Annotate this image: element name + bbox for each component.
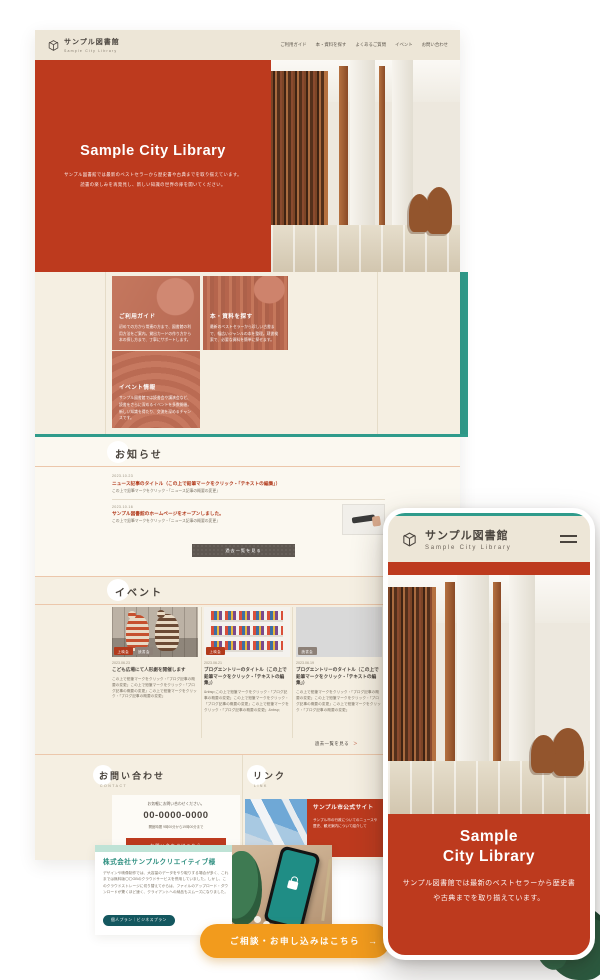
mobile-page: サンプル図書館 Sample City Library Sample	[388, 513, 590, 955]
nav-item-search-books[interactable]: 本・資料を探す	[316, 42, 347, 48]
event-tag: 読書会	[135, 647, 154, 655]
event-title-link[interactable]: ブログエントリーのタイトル（この上で鉛筆マークをクリック・「テキストの編集」）	[296, 667, 382, 687]
cube-logo-icon	[401, 531, 418, 548]
main-nav: ご利用ガイド 本・資料を探す よくあるご質問 イベント お問い合わせ	[280, 42, 448, 48]
event-tag: 上映会	[206, 647, 225, 655]
hamburger-menu-icon[interactable]	[560, 535, 577, 547]
feature-events-title: イベント情報	[119, 383, 193, 391]
feature-card-guide[interactable]: ご利用ガイド 初めての方から常連の方まで、図書館の利用方法をご案内。貸出カードの…	[112, 276, 200, 350]
event-photo-dolls: 上映会 読書会	[112, 607, 198, 657]
event-photo-placeholder: 読書会	[296, 607, 382, 657]
teal-backdrop-bar	[459, 272, 468, 436]
feature-guide-title: ご利用ガイド	[119, 312, 193, 320]
mobile-hero-title-line2: City Library	[388, 847, 590, 867]
hero-text-panel: Sample City Library サンプル図書館では最新のベストセラーから…	[35, 60, 271, 272]
contact-phone: 00-0000-0000	[112, 810, 240, 821]
links-heading-en: LINK	[254, 784, 268, 788]
feature-guide-body: 初めての方から常連の方まで、図書館の利用方法をご案内。貸出カードの作り方から本の…	[119, 324, 193, 344]
event-date: 2023.06.21	[204, 661, 290, 665]
chevron-right-icon: ＞	[353, 741, 358, 746]
site-header: サンプル図書館 Sample City Library ご利用ガイド 本・資料を…	[35, 30, 460, 60]
feature-card-search[interactable]: 本・資料を探す 最新のベストセラーから珍しい古書まで、幅広いジャンルの本を整理。…	[203, 276, 288, 350]
event-photo-bookshelf: 上映会	[204, 607, 290, 657]
cta-label: ご相談・お申し込みはこちら	[230, 935, 360, 947]
mobile-screenshot-frame: サンプル図書館 Sample City Library Sample	[383, 508, 595, 960]
feature-card-events[interactable]: イベント情報 サンプル図書館では読書会や講演会など、読書をさらに深めるイベントを…	[112, 351, 200, 428]
testimonial-body: デザインや映像制作では、大容量のデータをやり取りする場合が多く、これまでは無料版…	[103, 870, 229, 896]
news-thumbnail	[342, 504, 385, 535]
links-heading: リンク	[253, 769, 286, 782]
hero-library-photo	[271, 60, 460, 272]
news-summary: この上で鉛筆マークをクリック・「ニュース記事の概要の変更」	[112, 519, 333, 524]
link-card-body: サンプル市の行政についてのニュースや歴史、観光案内について紹介して	[313, 817, 379, 829]
link-card-title: サンプル市公式サイト	[313, 805, 379, 813]
event-title-link[interactable]: こども広場にて人形劇を開催します	[112, 667, 198, 674]
teal-section-seam	[35, 434, 468, 437]
arrow-right-icon: →	[368, 936, 377, 946]
news-more-button[interactable]: 過去一覧を見る	[192, 544, 295, 557]
contact-heading-en: CONTACT	[100, 784, 127, 788]
earbud-decoration	[254, 916, 261, 923]
testimonial-photo	[232, 845, 332, 935]
event-card[interactable]: 上映会 読書会 2023.06.23 こども広場にて人形劇を開催します この上で…	[112, 607, 198, 700]
feature-search-title: 本・資料を探す	[210, 312, 281, 320]
contact-note: お気軽にお問い合わせください。	[112, 802, 240, 807]
news-heading: お知らせ	[115, 446, 163, 461]
contact-hours: 開館時間 9時00分から19時00分まで	[112, 824, 240, 829]
plant-decoration	[232, 851, 262, 925]
event-card[interactable]: 読書会 2023.06.19 ブログエントリーのタイトル（この上で鉛筆マークをク…	[296, 607, 382, 714]
mobile-hero-panel: Sample City Library サンプル図書館では最新のベストセラーから…	[388, 814, 590, 955]
event-tag: 読書会	[298, 647, 317, 655]
event-date: 2023.06.19	[296, 661, 382, 665]
event-card[interactable]: 上映会 2023.06.21 ブログエントリーのタイトル（この上で鉛筆マークをク…	[204, 607, 290, 714]
news-date: 2023.10.16	[112, 505, 333, 509]
mobile-hero-photo	[388, 575, 590, 814]
logo-title: サンプル図書館	[64, 37, 120, 47]
hero-section: Sample City Library サンプル図書館では最新のベストセラーから…	[35, 60, 460, 272]
news-item: 2023.10.23 ニュース記事のタイトル（この上で鉛筆マークをクリック・「テ…	[112, 474, 385, 494]
site-logo[interactable]: サンプル図書館 Sample City Library	[47, 37, 120, 53]
hero-subtitle-line2: 読書の楽しみを再発見し、新しい知識の世界の扉を開いてください。	[80, 180, 225, 189]
news-title-link[interactable]: ニュース記事のタイトル（この上で鉛筆マークをクリック・「テキストの編集」）	[112, 481, 385, 487]
testimonial-plan-badge: 個人プラン｜ビジネスプラン	[103, 915, 175, 926]
mobile-red-bar	[388, 562, 590, 575]
nav-item-guide[interactable]: ご利用ガイド	[280, 42, 306, 48]
event-body: この上で鉛筆マークをクリック・「ブログ記事の概要の変更」この上で鉛筆マークをクリ…	[296, 690, 382, 714]
news-title-link[interactable]: サンプル図書館のホームページをオープンしました。	[112, 511, 333, 517]
event-title-link[interactable]: ブログエントリーのタイトル（この上で鉛筆マークをクリック・「テキストの編集」）	[204, 667, 290, 687]
events-more-link[interactable]: 過去一覧を見る＞	[315, 741, 358, 747]
event-date: 2023.06.23	[112, 661, 198, 665]
cube-logo-icon	[47, 39, 60, 52]
features-section: ご利用ガイド 初めての方から常連の方まで、図書館の利用方法をご案内。貸出カードの…	[35, 272, 460, 435]
mobile-hero-title-line1: Sample	[388, 827, 590, 847]
smartphone-image	[263, 845, 321, 930]
cta-apply-button[interactable]: ご相談・お申し込みはこちら →	[200, 924, 390, 958]
mobile-hero-body: サンプル図書館では最新のベストセラーから歴史書や古典までを取り揃えています。	[402, 877, 576, 906]
nav-item-events[interactable]: イベント	[395, 42, 413, 48]
mobile-header: サンプル図書館 Sample City Library	[388, 516, 590, 562]
lock-icon	[287, 880, 299, 890]
mobile-logo-title: サンプル図書館	[425, 527, 512, 543]
nav-item-contact[interactable]: お問い合わせ	[422, 42, 448, 48]
event-body: この上で鉛筆マークをクリック・「ブログ記事の概要の変更」この上で鉛筆マークをクリ…	[112, 677, 198, 701]
hero-subtitle-line1: サンプル図書館では最新のベストセラーから歴史書や古典までを取り揃えています。	[64, 170, 242, 179]
feature-search-body: 最新のベストセラーから珍しい古書まで、幅広いジャンルの本を整理。蔵書検索で、必要…	[210, 324, 281, 344]
events-heading: イベント	[115, 584, 163, 599]
contact-heading: お問い合わせ	[99, 769, 165, 782]
event-body: &nbsp;この上で鉛筆マークをクリック・「ブログ記事の概要の変更」この上で鉛筆…	[204, 690, 290, 714]
news-divider	[112, 499, 385, 500]
pencil-decoration	[321, 859, 331, 921]
hero-title: Sample City Library	[80, 143, 226, 159]
news-list: 2023.10.23 ニュース記事のタイトル（この上で鉛筆マークをクリック・「テ…	[112, 474, 385, 524]
news-summary: この上で鉛筆マークをクリック・「ニュース記事の概要の変更」	[112, 489, 385, 494]
testimonial-card: 株式会社サンプルクリエイティブ様 デザインや映像制作では、大容量のデータをやり取…	[95, 845, 332, 935]
event-tag: 上映会	[114, 647, 133, 655]
news-date: 2023.10.23	[112, 474, 385, 478]
nav-item-faq[interactable]: よくあるご質問	[355, 42, 386, 48]
feature-events-body: サンプル図書館では読書会や講演会など、読書をさらに深めるイベントを多数開催。新し…	[119, 395, 193, 422]
logo-subtitle: Sample City Library	[64, 49, 120, 53]
mobile-logo-subtitle: Sample City Library	[425, 545, 512, 551]
